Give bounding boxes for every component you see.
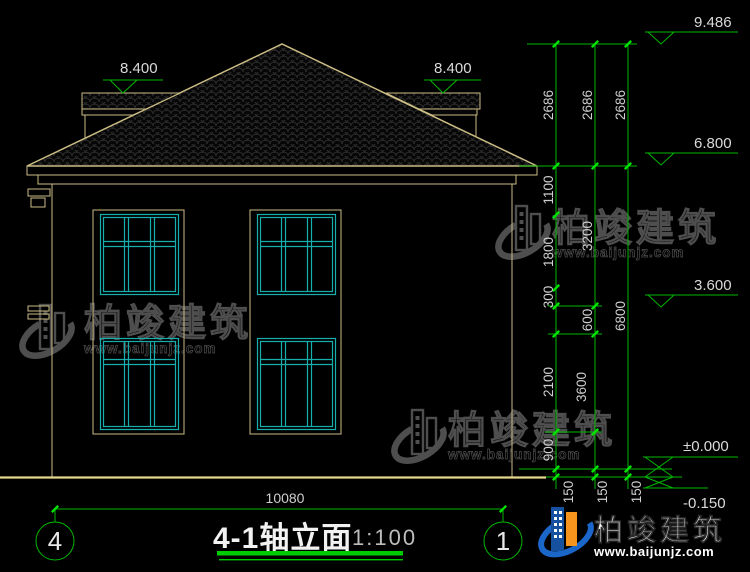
level-ridge-value: 9.486	[694, 14, 732, 31]
dim-6800: 6800	[613, 301, 628, 331]
watermark-brand: 柏竣建筑	[448, 410, 616, 452]
dim-150-2: 150	[595, 481, 610, 504]
dim-300: 300	[541, 286, 556, 309]
logo-brand-text: 柏竣建筑	[594, 513, 726, 547]
level-wing-left-value: 8.400	[120, 60, 158, 77]
title-underline-thin	[219, 559, 403, 560]
dim-150-3: 150	[629, 481, 644, 504]
dim-2686-1: 2686	[541, 90, 556, 120]
brand-logo: 柏竣建筑 www.baijunjz.com	[535, 507, 726, 562]
dim-1100: 1100	[541, 175, 556, 204]
watermark-site: www.baijunjz.com	[551, 245, 685, 260]
dim-2100: 2100	[541, 367, 556, 397]
level-wing-right-value: 8.400	[434, 60, 472, 77]
cad-elevation-drawing: 柏竣建筑 www.baijunjz.com 柏竣建筑 www.baijunjz.…	[0, 0, 750, 572]
logo-building-icon	[551, 507, 564, 551]
title-underline-thick	[217, 551, 403, 556]
watermark-site: www.baijunjz.com	[447, 447, 581, 462]
dim-150-1: 150	[561, 481, 576, 504]
axis-right-label: 1	[496, 526, 510, 556]
level-floor-value: ±0.000	[683, 438, 729, 455]
dim-900: 900	[541, 439, 556, 462]
drawing-canvas: 柏竣建筑 www.baijunjz.com 柏竣建筑 www.baijunjz.…	[0, 0, 750, 572]
dim-2686-2: 2686	[580, 90, 595, 120]
drawing-scale: 1:100	[352, 525, 417, 550]
level-ground-value: -0.150	[683, 495, 726, 512]
drawing-title: 4-1轴立面	[213, 521, 352, 555]
dim-total-width: 10080	[266, 490, 305, 506]
dim-600: 600	[580, 309, 595, 332]
axis-left-label: 4	[48, 526, 62, 556]
dim-1800: 1800	[541, 237, 556, 267]
dim-3600: 3600	[574, 372, 589, 402]
dim-3200: 3200	[580, 221, 595, 251]
dim-2686-3: 2686	[613, 90, 628, 120]
logo-site-text: www.baijunjz.com	[593, 544, 714, 559]
level-eave-value: 6.800	[694, 135, 732, 152]
level-window-head-value: 3.600	[694, 277, 732, 294]
logo-building-accent	[566, 512, 577, 546]
watermark-brand: 柏竣建筑	[552, 208, 720, 250]
